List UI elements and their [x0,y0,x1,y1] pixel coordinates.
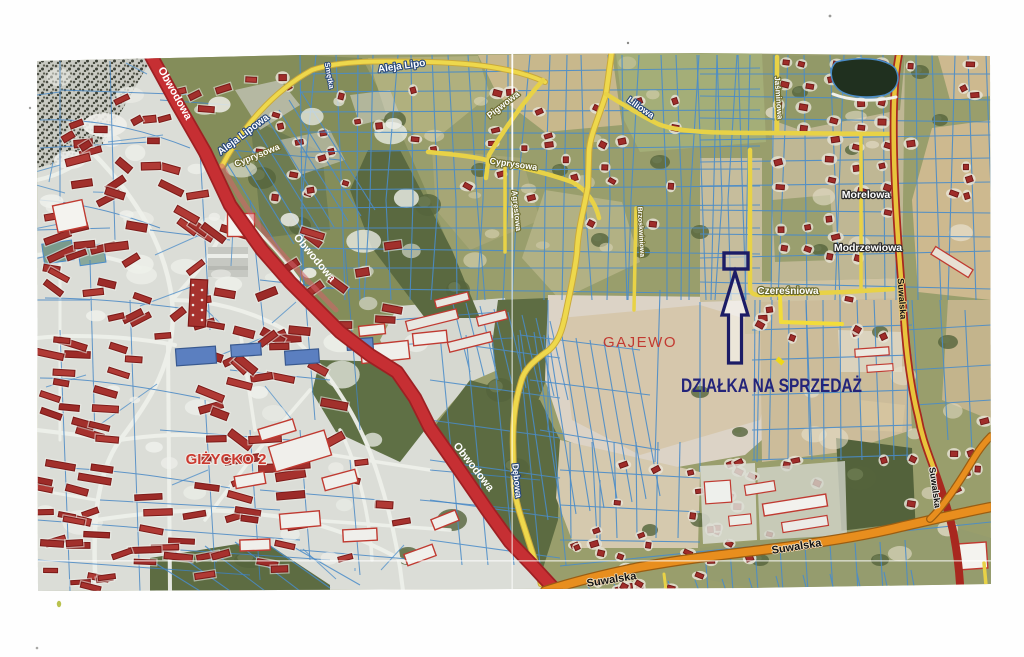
svg-text:Modrzewiowa: Modrzewiowa [834,242,902,254]
svg-text:Czereśniowa: Czereśniowa [757,286,819,297]
svg-text:Morelowa: Morelowa [842,189,891,201]
svg-text:GAJEWO: GAJEWO [603,334,677,351]
svg-text:DZIAŁKA NA SPRZEDAŻ: DZIAŁKA NA SPRZEDAŻ [681,376,862,397]
svg-text:GIŻYCKO 2: GIŻYCKO 2 [186,451,267,468]
